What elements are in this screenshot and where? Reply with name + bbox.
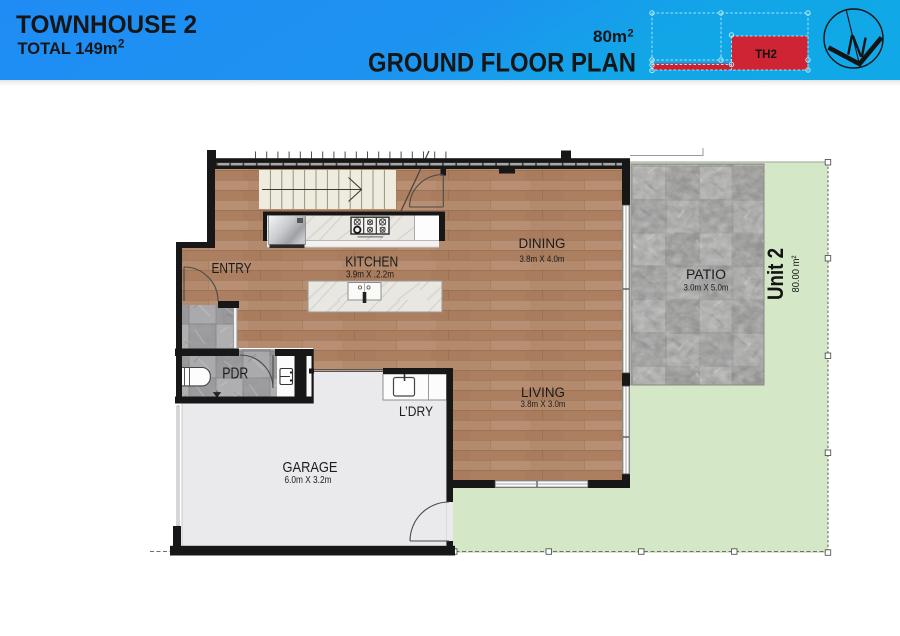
svg-text:3.9m X .2.2m: 3.9m X .2.2m: [346, 270, 394, 281]
svg-text:TOWNHOUSE 2: TOWNHOUSE 2: [16, 11, 197, 39]
svg-text:2: 2: [118, 39, 124, 51]
svg-text:KITCHEN: KITCHEN: [345, 255, 398, 271]
svg-text:2: 2: [628, 28, 634, 40]
svg-text:GROUND FLOOR PLAN: GROUND FLOOR PLAN: [368, 48, 636, 78]
svg-text:Unit 2: Unit 2: [763, 248, 788, 300]
svg-text:DINING: DINING: [519, 236, 566, 251]
svg-text:TOTAL 149m: TOTAL 149m: [18, 39, 118, 58]
svg-text:PDR: PDR: [222, 366, 248, 383]
svg-text:80.00 m²: 80.00 m²: [790, 255, 802, 292]
svg-text:PATIO: PATIO: [686, 267, 726, 282]
svg-text:L’DRY: L’DRY: [399, 404, 433, 419]
svg-text:TH2: TH2: [755, 49, 777, 61]
svg-text:3.8m X 4.0m: 3.8m X 4.0m: [520, 254, 565, 265]
svg-text:3.0m X 5.0m: 3.0m X 5.0m: [684, 283, 729, 294]
svg-text:80m: 80m: [593, 27, 627, 46]
svg-text:6.0m X 3.2m: 6.0m X 3.2m: [285, 475, 332, 486]
svg-text:GARAGE: GARAGE: [283, 459, 338, 476]
svg-text:ENTRY: ENTRY: [212, 261, 252, 277]
svg-text:LIVING: LIVING: [521, 385, 565, 400]
svg-text:3.8m X 3.0m: 3.8m X 3.0m: [521, 399, 566, 410]
